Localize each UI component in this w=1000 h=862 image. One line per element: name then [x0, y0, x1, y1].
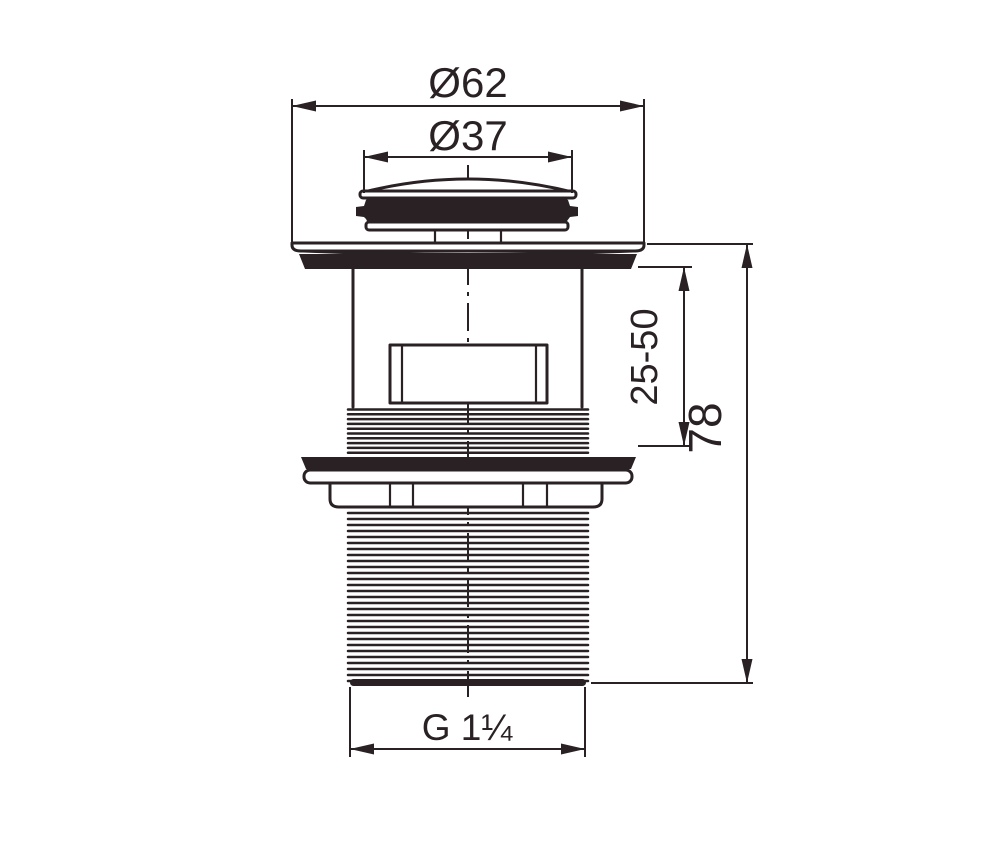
- arrowhead-left: [364, 152, 388, 163]
- arrowhead-left: [292, 101, 316, 112]
- dim-label-clamp-range: 25-50: [624, 308, 666, 405]
- overflow-slot: [390, 345, 547, 403]
- arrowhead-right: [620, 101, 644, 112]
- dim-label-cap-diameter: Ø37: [428, 112, 507, 159]
- drain-assembly: [292, 165, 644, 697]
- dim-label-outer-diameter: Ø62: [428, 59, 507, 106]
- tailpiece-end: [350, 679, 586, 686]
- dimension-thread-size: G 1¼: [350, 687, 585, 757]
- friction-washer: [304, 470, 632, 483]
- arrowhead-left: [350, 744, 374, 755]
- arrowhead-right: [561, 744, 585, 755]
- dim-label-thread-size: G 1¼: [422, 707, 514, 748]
- cap-seal-gasket: [356, 197, 578, 223]
- technical-drawing-page: Ø62 Ø37 25-50 78 G 1¼: [0, 0, 1000, 862]
- basin-waste-drawing: Ø62 Ø37 25-50 78 G 1¼: [0, 0, 1000, 862]
- dim-label-overall-height: 78: [679, 402, 731, 453]
- rubber-washer-bottom: [301, 457, 636, 469]
- cap-bottom-plate: [366, 222, 568, 230]
- lower-thread: [348, 513, 588, 681]
- arrowhead-right: [548, 152, 572, 163]
- top-flange: [292, 243, 644, 251]
- arrowhead-top: [679, 267, 690, 291]
- arrowhead-top: [742, 244, 753, 268]
- lock-nut: [330, 483, 602, 507]
- rubber-washer-top: [299, 254, 637, 269]
- cap-top-plate: [360, 191, 576, 198]
- arrowhead-bottom: [742, 659, 753, 683]
